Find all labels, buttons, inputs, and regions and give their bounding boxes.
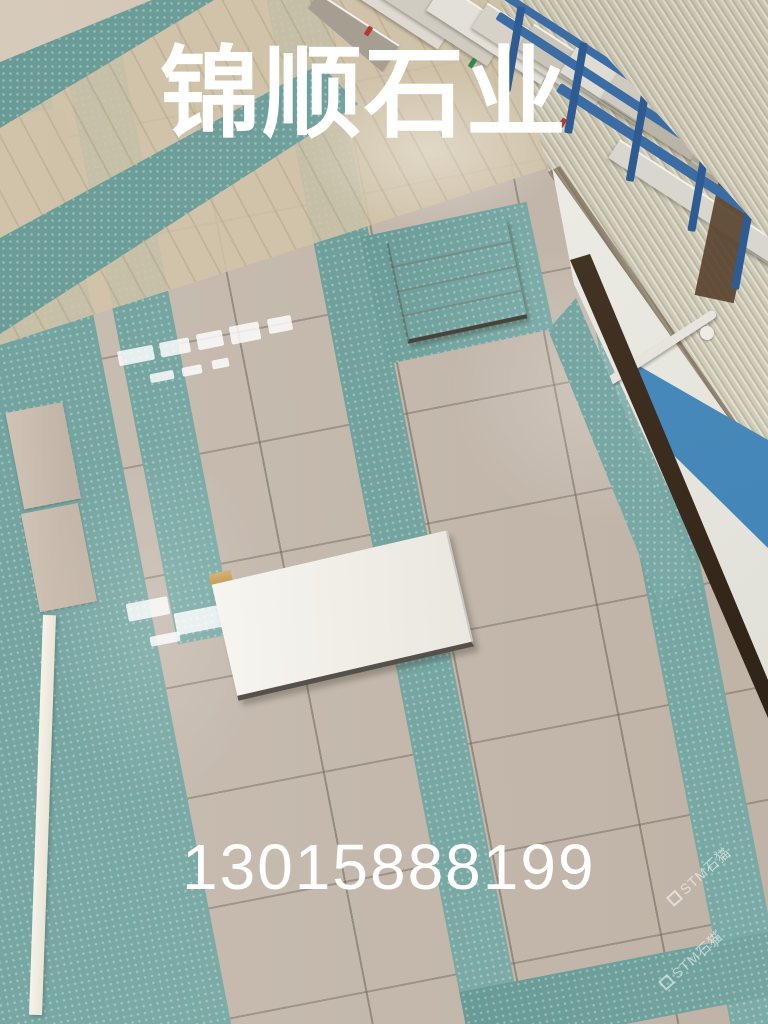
company-name-overlay: 锦顺石业 [160, 42, 760, 147]
wall-pipe-elbow [700, 326, 714, 340]
factory-showroom-photo: 锦顺石业 13015888199 STM石猫 STM石猫 [0, 0, 768, 1024]
phone-number-overlay: 13015888199 [182, 830, 596, 904]
